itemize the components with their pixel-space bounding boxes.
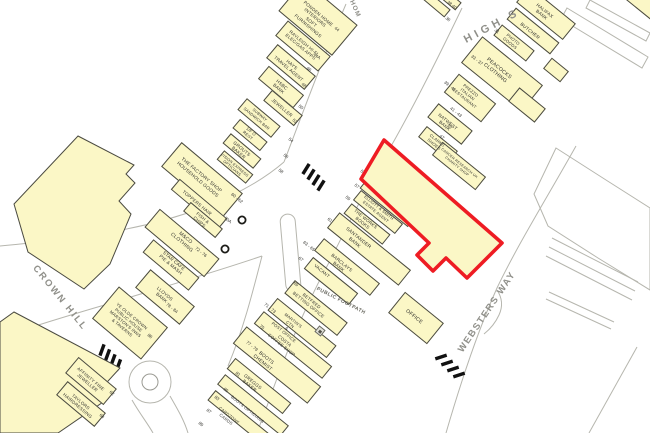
building-rear-outbuilding	[543, 58, 569, 83]
street-number: 58	[278, 168, 285, 175]
building-corner-building	[626, 0, 650, 23]
street-number: 87	[206, 408, 213, 415]
goad-plan-map: PONDEN HOME INTERIORS SOFT FURNISHINGSRA…	[0, 0, 650, 433]
street-number: 50	[298, 104, 305, 111]
street-number: 59	[345, 195, 352, 202]
zebra-crossing-websters-way	[435, 354, 465, 379]
street-number: 67	[298, 256, 305, 263]
traffic-island	[280, 213, 302, 292]
zebra-crossing-high-street	[301, 163, 325, 191]
street-number: 89	[198, 421, 205, 428]
road-label-crown-hill: CROWN HILL	[30, 263, 89, 333]
zebra-crossing-crown-hill	[98, 344, 122, 371]
road-label-hom-road: HOM	[348, 0, 362, 19]
building-peacocks-rear	[508, 87, 546, 122]
street-number: 54	[288, 137, 295, 144]
street-number: 36	[445, 16, 452, 23]
street-number: 56	[283, 153, 290, 160]
street-number: 70A	[223, 216, 232, 225]
street-number: 63 - 65	[302, 240, 316, 252]
roundabout-island	[142, 374, 158, 390]
bollards	[221, 216, 245, 252]
road-label-websters-way: WEBSTERS WAY	[456, 269, 518, 354]
rear-premises-west	[14, 136, 135, 289]
